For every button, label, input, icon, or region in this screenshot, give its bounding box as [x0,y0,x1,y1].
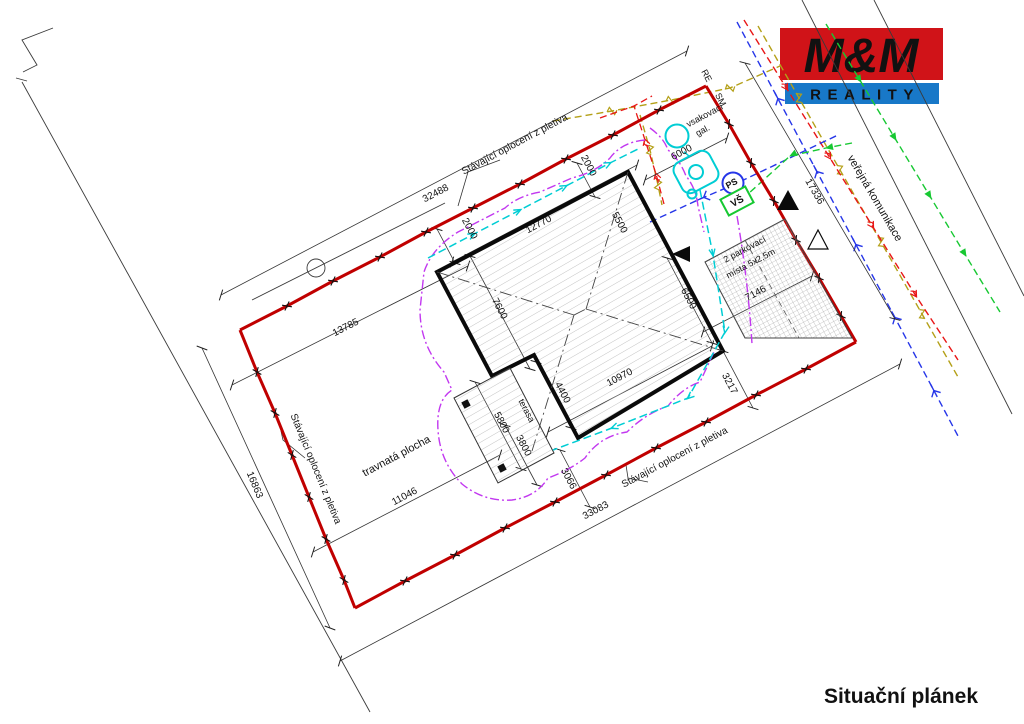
re-label: RE [699,68,714,84]
site-plan-canvas: M&M REALITY [0,0,1024,724]
dimline-11046 [313,455,500,552]
dim-gap-left-label: 2000 [459,216,479,241]
logo-bottom-text: REALITY [810,87,920,104]
dim-13785-label: 13785 [331,316,361,339]
electric-top-stub-line [600,96,652,118]
neighbor-boundary-line [22,82,370,712]
corner-tick [16,78,27,81]
dim-3066-label: 3066 [558,466,578,491]
grass-area-label: travnatá plocha [361,433,434,479]
gas-branch-line [553,66,780,121]
dim-boundary-top-label: 32488 [421,182,451,205]
fence-label-top: Stávající oplocení z pletiva [460,112,570,178]
dim-boundary-left-label: 16863 [244,470,265,500]
dim-boundary-bottom-label: 33083 [581,499,611,522]
black-triangle-symbol [777,190,799,210]
white-triangle-symbol [808,230,828,249]
page-title: Situační plánek [824,685,978,708]
dim-3217-label: 3217 [719,371,739,396]
tank-inner-circle [687,163,706,182]
corner-zigzag-line [22,28,53,72]
service-line [252,203,445,300]
mm-reality-logo: M&M REALITY [780,28,943,104]
road-edge-line-2 [874,0,1024,296]
